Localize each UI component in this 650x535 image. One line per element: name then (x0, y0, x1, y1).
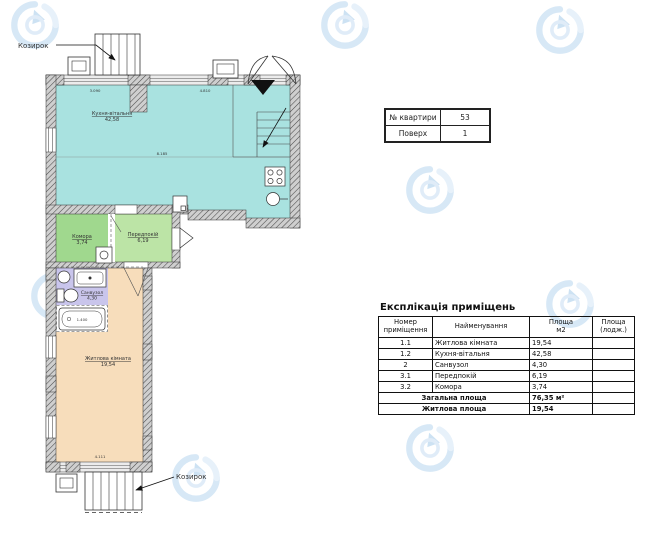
canopy-bottom (56, 472, 142, 513)
total-area-row: Загальна площа 76,35 м² (379, 393, 635, 404)
dim-mid: 8.185 (157, 151, 168, 156)
canopy-top (68, 34, 238, 78)
living-area-row: Житлова площа 19,54 (379, 404, 635, 415)
apartment-number-value: 53 (441, 109, 491, 126)
living-area-loggia (593, 404, 635, 415)
row4-name: Передпокій (433, 371, 530, 382)
row1-loggia (593, 338, 635, 349)
apartment-number-label: № квартири (385, 109, 441, 126)
dim-top-left: 3.090 (90, 88, 101, 93)
info-row-apartment: № квартири 53 (385, 109, 490, 126)
row2-area: 42,58 (530, 349, 593, 360)
toilet-tank (57, 289, 64, 302)
apartment-info-table: № квартири 53 Поверх 1 (384, 108, 491, 143)
row2-loggia (593, 349, 635, 360)
explication-header-row: Номер приміщення Найменування Площа м2 П… (379, 317, 635, 338)
label-hall-name: Передпокій (128, 231, 159, 238)
canopy-bottom-label: Козирок (176, 473, 206, 481)
floor-value: 1 (441, 126, 491, 143)
label-bath-area: 4,30 (87, 296, 97, 302)
row2-name: Кухня-вітальня (433, 349, 530, 360)
label-bath-name: Санвузол (81, 290, 103, 296)
table-row: 2 Санвузол 4,30 (379, 360, 635, 371)
table-row: 1.1 Житлова кімната 19,54 (379, 338, 635, 349)
label-hall-area: 6,19 (137, 238, 148, 244)
total-area-label: Загальна площа (379, 393, 530, 404)
dim-top-right: 4.810 (200, 88, 211, 93)
explication-title: Експлікація приміщень (380, 302, 632, 313)
row3-area: 4,30 (530, 360, 593, 371)
dim-tub: 1.400 (77, 317, 88, 322)
row5-num: 3.2 (379, 382, 433, 393)
label-kitchen-area: 42,58 (105, 117, 119, 123)
row1-area: 19,54 (530, 338, 593, 349)
row4-loggia (593, 371, 635, 382)
floor-plan: Кухня-вітальня 42,58 Комора 3,74 Передпо… (0, 0, 650, 535)
row5-loggia (593, 382, 635, 393)
row5-area: 3,74 (530, 382, 593, 393)
row3-loggia (593, 360, 635, 371)
dim-bottom: 4.111 (95, 454, 106, 459)
info-row-floor: Поверх 1 (385, 126, 490, 143)
table-row: 1.2 Кухня-вітальня 42,58 (379, 349, 635, 360)
header-area-loggia: Площа (лодж.) (593, 317, 635, 338)
sink-icon (267, 193, 280, 206)
row4-num: 3.1 (379, 371, 433, 382)
living-area-label: Житлова площа (379, 404, 530, 415)
header-area: Площа м2 (530, 317, 593, 338)
row1-num: 1.1 (379, 338, 433, 349)
toilet-icon (64, 289, 78, 302)
stove-icon (265, 167, 285, 186)
basin-icon (58, 271, 70, 283)
row1-name: Житлова кімната (433, 338, 530, 349)
row3-num: 2 (379, 360, 433, 371)
living-area-value: 19,54 (530, 404, 593, 415)
explication-block: Експлікація приміщень Номер приміщення Н… (378, 302, 632, 415)
canopy-top-label: Козирок (18, 42, 48, 50)
drawing-page: Кухня-вітальня 42,58 Комора 3,74 Передпо… (0, 0, 650, 535)
table-row: 3.1 Передпокій 6,19 (379, 371, 635, 382)
row3-name: Санвузол (433, 360, 530, 371)
table-row: 3.2 Комора 3,74 (379, 382, 635, 393)
total-area-loggia (593, 393, 635, 404)
explication-table: Номер приміщення Найменування Площа м2 П… (378, 316, 635, 415)
row4-area: 6,19 (530, 371, 593, 382)
header-name: Найменування (433, 317, 530, 338)
row2-num: 1.2 (379, 349, 433, 360)
floor-label: Поверх (385, 126, 441, 143)
label-living-area: 19,54 (101, 362, 115, 368)
total-area-value: 76,35 м² (530, 393, 593, 404)
row5-name: Комора (433, 382, 530, 393)
label-storage-area: 3,74 (76, 240, 87, 246)
header-number: Номер приміщення (379, 317, 433, 338)
